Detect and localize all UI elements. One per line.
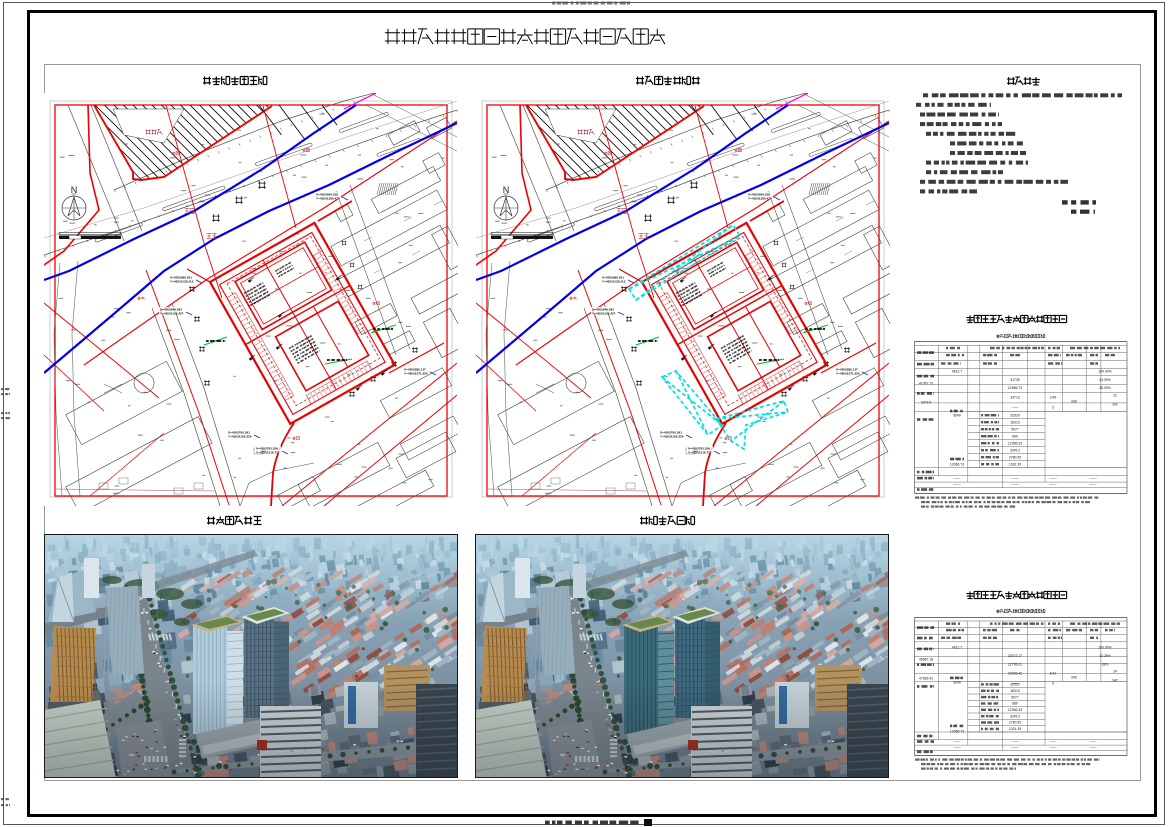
svg-text:——: —— [1089,482,1097,486]
svg-text:240: 240 [1071,675,1077,679]
svg-text:12366.33: 12366.33 [1008,708,1022,712]
svg-text:3249.2: 3249.2 [1010,448,1020,452]
svg-text:3: 3 [1052,681,1054,685]
svg-text:——: —— [1049,482,1057,486]
svg-text:1331.39: 1331.39 [1009,462,1021,466]
svg-text:42.29%: 42.29% [1099,654,1111,658]
svg-text:——: —— [1011,739,1019,743]
svg-text:——: —— [953,739,961,743]
svg-text:5977: 5977 [1011,427,1019,431]
svg-text:9549: 9549 [953,680,961,684]
svg-text:Y=43531216.731: Y=43531216.731 [256,450,280,454]
svg-text:4612.7: 4612.7 [952,369,962,373]
svg-text:45867.18: 45867.18 [919,657,933,661]
svg-text:680: 680 [1012,434,1018,438]
svg-text:Y=43531108.427: Y=43531108.427 [592,311,616,315]
svg-text:Y=43531130.215: Y=43531130.215 [170,279,194,283]
svg-text:31739: 31739 [1010,377,1020,381]
svg-text:——: —— [1012,405,1019,409]
svg-text:12366.33: 12366.33 [1008,441,1022,445]
svg-text:18313: 18313 [1010,420,1020,424]
svg-text:342: 342 [1112,402,1118,406]
svg-text:100.00%: 100.00% [1098,369,1111,373]
svg-text:24: 24 [1113,669,1117,673]
svg-text:Y=43531371.350: Y=43531371.350 [404,371,428,375]
svg-text:4612.7: 4612.7 [952,645,962,649]
svg-text:——: —— [1089,476,1097,480]
svg-text:Y=43531156.329: Y=43531156.329 [228,434,252,438]
svg-text:Y=43531216.731: Y=43531216.731 [688,450,712,454]
svg-text:Y=43531130.215: Y=43531130.215 [602,279,626,283]
svg-text:12966.73: 12966.73 [1008,386,1022,390]
svg-text:342: 342 [1112,678,1118,682]
svg-text:12966.73: 12966.73 [950,462,964,466]
svg-text:——: —— [1011,482,1019,486]
svg-text:12966.73: 12966.73 [950,729,964,733]
svg-text:3: 3 [1052,405,1054,409]
svg-text:32520: 32520 [1010,413,1020,417]
svg-text:22: 22 [1113,393,1117,397]
svg-text:28.00%: 28.00% [1099,386,1111,390]
svg-text:Y=43531286.420: Y=43531286.420 [316,196,340,200]
svg-text:100.00%: 100.00% [1098,645,1111,649]
svg-text:3249.2: 3249.2 [1010,714,1020,718]
svg-text:47367.73: 47367.73 [919,381,933,385]
svg-text:47826.41: 47826.41 [919,676,933,680]
svg-text:8.41: 8.41 [1050,671,1057,675]
svg-text:——: —— [953,482,961,486]
svg-text:18313: 18313 [1010,689,1020,693]
svg-text:Y=43531371.350: Y=43531371.350 [836,371,860,375]
svg-text:2780.59: 2780.59 [1009,720,1021,724]
svg-text:12795.01: 12795.01 [1008,662,1022,666]
svg-text:——: —— [1089,739,1097,743]
svg-text:Y=43531156.329: Y=43531156.329 [660,434,684,438]
svg-text:——: —— [1049,739,1057,743]
svg-text:——: —— [1089,744,1097,748]
svg-text:——: —— [1011,476,1019,480]
svg-text:9549: 9549 [953,413,961,417]
svg-text:680: 680 [1012,701,1018,705]
svg-text:33926.42: 33926.42 [1008,671,1022,675]
svg-text:33713: 33713 [1010,395,1020,399]
svg-text:5977: 5977 [1011,695,1019,699]
svg-text:2780.59: 2780.59 [1009,455,1021,459]
svg-text:Y=43531108.427: Y=43531108.427 [160,311,184,315]
svg-text:——: —— [1049,744,1057,748]
svg-text:——: —— [1011,744,1019,748]
svg-text:Y=43531286.420: Y=43531286.420 [748,196,772,200]
svg-text:——: —— [953,476,961,480]
svg-text:——: —— [953,744,961,748]
svg-text:28%: 28% [1102,662,1109,666]
svg-text:3373.5: 3373.5 [921,400,931,404]
svg-text:43.39%: 43.39% [1099,377,1111,381]
svg-text:——: —— [1049,476,1057,480]
svg-text:1331.39: 1331.39 [1009,727,1021,731]
svg-text:32520: 32520 [1010,682,1020,686]
svg-text:0.45: 0.45 [1050,395,1057,399]
svg-text:33072.17: 33072.17 [1008,654,1022,658]
svg-text:240: 240 [1071,399,1077,403]
